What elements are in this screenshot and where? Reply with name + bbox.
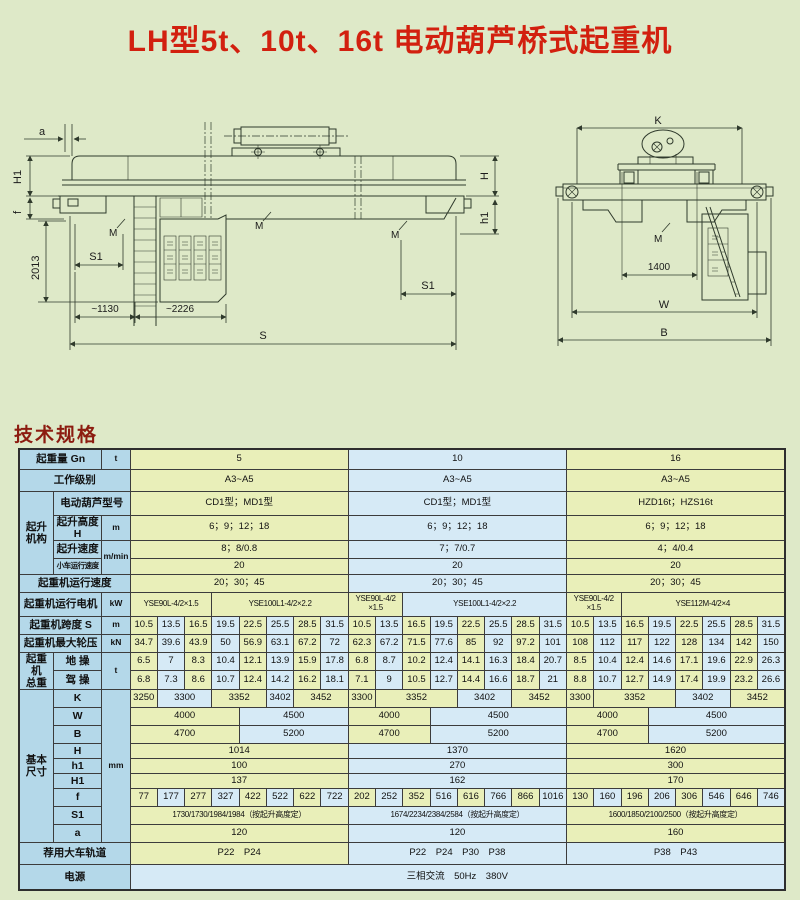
spec-cell: 130 <box>566 788 593 806</box>
spec-cell: 10.2 <box>403 652 430 671</box>
spec-cell: 3352 <box>212 689 267 707</box>
dim-label-S1-right: S1 <box>421 280 434 292</box>
spec-cell: 56.9 <box>239 634 266 652</box>
spec-cell: 23.2 <box>730 671 757 690</box>
spec-cell: 20.7 <box>539 652 566 671</box>
spec-cell: 67.2 <box>376 634 403 652</box>
spec-cell: P38 P43 <box>566 842 785 864</box>
spec-cell: YSE100L1-4/2×2.2 <box>403 592 567 616</box>
spec-cell: 77.6 <box>430 634 457 652</box>
row-label: K <box>53 689 101 707</box>
spec-cell: A3~A5 <box>130 469 348 491</box>
spec-cell: 170 <box>566 773 785 788</box>
spec-cell: 15.9 <box>294 652 321 671</box>
spec-cell: 522 <box>266 788 293 806</box>
spec-cell: 12.4 <box>239 671 266 690</box>
row-label: W <box>53 707 101 725</box>
end-view-dimensions <box>558 128 771 346</box>
spec-cell: 16.5 <box>403 616 430 634</box>
spec-cell: 122 <box>648 634 675 652</box>
spec-cell: 10.5 <box>403 671 430 690</box>
spec-cell: 39.6 <box>157 634 184 652</box>
spec-cell: 252 <box>376 788 403 806</box>
unit-label: t <box>102 449 130 469</box>
spec-cell: 150 <box>757 634 785 652</box>
spec-cell: 10.4 <box>212 652 239 671</box>
spec-cell: 300 <box>566 758 785 773</box>
spec-cell: 14.2 <box>266 671 293 690</box>
spec-cell: 19.5 <box>648 616 675 634</box>
spec-cell: 8.6 <box>185 671 212 690</box>
spec-cell: 4000 <box>566 707 648 725</box>
spec-cell: 108 <box>566 634 593 652</box>
unit-label: kN <box>102 634 130 652</box>
spec-cell: 112 <box>594 634 621 652</box>
spec-cell: 160 <box>594 788 621 806</box>
spec-cell: 28.5 <box>730 616 757 634</box>
dim-label-1400: 1400 <box>648 262 671 273</box>
unit-label: m <box>102 616 130 634</box>
spec-cell: 206 <box>648 788 675 806</box>
spec-cell: 31.5 <box>757 616 785 634</box>
spec-cell: 28.5 <box>294 616 321 634</box>
spec-cell: YSE90L-4/2 ×1.5 <box>566 592 621 616</box>
spec-cell: 13.5 <box>157 616 184 634</box>
spec-cell: 8.5 <box>566 652 593 671</box>
group-label: 起升 机构 <box>19 491 53 574</box>
unit-label: kW <box>102 592 130 616</box>
spec-cell: 142 <box>730 634 757 652</box>
spec-cell: 17.1 <box>676 652 703 671</box>
spec-cell: 25.5 <box>266 616 293 634</box>
spec-cell: 28.5 <box>512 616 539 634</box>
dim-label-h1: h1 <box>479 212 491 224</box>
spec-cell: 13.9 <box>266 652 293 671</box>
spec-cell: 10.5 <box>130 616 157 634</box>
spec-cell: 22.9 <box>730 652 757 671</box>
unit-label: m/min <box>102 540 130 574</box>
spec-cell: 4700 <box>348 725 430 743</box>
spec-cell: P22 P24 P30 P38 <box>348 842 566 864</box>
spec-cell: 50 <box>212 634 239 652</box>
row-label: 工作级别 <box>19 469 130 491</box>
spec-cell: A3~A5 <box>566 469 785 491</box>
spec-cell: 1674/2234/2384/2584（按起升高度定） <box>348 806 566 824</box>
spec-cell: 14.1 <box>457 652 484 671</box>
spec-cell: 8.7 <box>376 652 403 671</box>
spec-cell: 8.8 <box>566 671 593 690</box>
spec-cell: 26.3 <box>757 652 785 671</box>
spec-cell: 20；30；45 <box>130 574 348 592</box>
spec-cell: CD1型；MD1型 <box>130 491 348 515</box>
crane-front-view-drawing: a H1 f 2013 S1 ~1130 ~2226 S S1 H h1 M M… <box>8 112 553 417</box>
spec-cell: 20；30；45 <box>566 574 785 592</box>
row-label: 起重机跨度 S <box>19 616 102 634</box>
spec-cell: 8；8/0.8 <box>130 540 348 558</box>
spec-cell: 1620 <box>566 743 785 758</box>
spec-cell: 12.7 <box>621 671 648 690</box>
spec-cell: 196 <box>621 788 648 806</box>
spec-cell: 97.2 <box>512 634 539 652</box>
spec-cell: 5200 <box>648 725 785 743</box>
row-label: f <box>53 788 101 806</box>
spec-cell: 7 <box>157 652 184 671</box>
dim-label-K: K <box>654 115 662 127</box>
dim-label-1130: ~1130 <box>91 304 119 315</box>
end-view-structure <box>556 130 773 300</box>
dim-label-a: a <box>39 126 46 138</box>
spec-cell: 19.6 <box>703 652 730 671</box>
unit-label: mm <box>102 689 130 842</box>
spec-cell: 177 <box>157 788 184 806</box>
spec-cell: 270 <box>348 758 566 773</box>
spec-cell: 20 <box>130 558 348 574</box>
spec-cell: 71.5 <box>403 634 430 652</box>
spec-cell: 16.5 <box>621 616 648 634</box>
spec-cell: 352 <box>403 788 430 806</box>
front-view-dim-labels: a H1 f 2013 S1 ~1130 ~2226 S S1 H h1 M M… <box>12 126 491 342</box>
spec-cell: 6；9；12；18 <box>348 515 566 540</box>
spec-cell: 18.7 <box>512 671 539 690</box>
spec-cell: 866 <box>512 788 539 806</box>
spec-table: 起重量 Gnt51016工作级别A3~A5A3~A5A3~A5起升 机构电动葫芦… <box>18 448 786 891</box>
spec-cell: 16.2 <box>294 671 321 690</box>
row-label: H <box>53 743 101 758</box>
spec-cell: 3402 <box>676 689 731 707</box>
dim-label-2013: 2013 <box>30 256 42 280</box>
spec-cell: 1016 <box>539 788 566 806</box>
row-label: a <box>53 824 101 842</box>
spec-cell: 5200 <box>430 725 566 743</box>
spec-cell: 1730/1730/1984/1984（按起升高度定） <box>130 806 348 824</box>
row-label: 起重机运行速度 <box>19 574 130 592</box>
spec-cell: 101 <box>539 634 566 652</box>
spec-cell: 22.5 <box>676 616 703 634</box>
spec-cell: 516 <box>430 788 457 806</box>
spec-cell: 4000 <box>348 707 430 725</box>
spec-cell: 85 <box>457 634 484 652</box>
spec-cell: 327 <box>212 788 239 806</box>
section-centerlines <box>205 122 361 219</box>
hoist-trolley <box>232 127 340 159</box>
spec-cell: 三相交流 50Hz 380V <box>130 864 785 890</box>
dim-label-H: H <box>479 172 491 180</box>
spec-cell: 8.3 <box>185 652 212 671</box>
spec-cell: 10.5 <box>566 616 593 634</box>
spec-cell: 766 <box>485 788 512 806</box>
crane-end-view-drawing: K 1400 W B M <box>550 112 790 417</box>
spec-cell: YSE90L-4/2×1.5 <box>130 592 212 616</box>
row-label: 起重量 Gn <box>19 449 102 469</box>
group-label: 起重 机 总重 <box>19 652 53 689</box>
spec-cell: 14.6 <box>648 652 675 671</box>
dim-label-2226: ~2226 <box>166 304 195 315</box>
row-label: 小车运行速度 <box>53 558 101 574</box>
row-label: 地 操 <box>53 652 101 671</box>
unit-label: m <box>102 515 130 540</box>
spec-cell: 6.5 <box>130 652 157 671</box>
row-label: 起重机运行电机 <box>19 592 102 616</box>
spec-cell: 10.7 <box>594 671 621 690</box>
section-heading: 技术规格 <box>14 420 98 447</box>
row-label: B <box>53 725 101 743</box>
spec-cell: 17.4 <box>676 671 703 690</box>
spec-cell: 3300 <box>157 689 212 707</box>
row-label: 驾 操 <box>53 671 101 690</box>
spec-cell: 162 <box>348 773 566 788</box>
spec-cell: 1370 <box>348 743 566 758</box>
spec-cell: 306 <box>676 788 703 806</box>
dim-label-S1-left: S1 <box>89 251 102 263</box>
spec-cell: YSE100L1-4/2×2.2 <box>212 592 348 616</box>
row-label: S1 <box>53 806 101 824</box>
spec-cell: 616 <box>457 788 484 806</box>
dim-label-f: f <box>12 210 24 214</box>
section-mark-M: M <box>654 234 662 245</box>
spec-cell: 4500 <box>430 707 566 725</box>
row-label: H1 <box>53 773 101 788</box>
spec-cell: 20 <box>348 558 566 574</box>
spec-cell: 16.6 <box>485 671 512 690</box>
spec-cell: 3452 <box>294 689 349 707</box>
spec-cell: 134 <box>703 634 730 652</box>
spec-cell: 3452 <box>512 689 567 707</box>
spec-cell: 128 <box>676 634 703 652</box>
page-title: LH型5t、10t、16t 电动葫芦桥式起重机 <box>0 16 800 60</box>
spec-cell: 19.5 <box>430 616 457 634</box>
spec-cell: 67.2 <box>294 634 321 652</box>
spec-cell: 1600/1850/2100/2500（按起升高度定） <box>566 806 785 824</box>
spec-cell: 22.5 <box>457 616 484 634</box>
spec-cell: 21 <box>539 671 566 690</box>
spec-cell: YSE112M-4/2×4 <box>621 592 785 616</box>
dim-label-W: W <box>659 299 670 311</box>
spec-cell: 31.5 <box>321 616 348 634</box>
spec-cell: 646 <box>730 788 757 806</box>
spec-cell: 6.8 <box>130 671 157 690</box>
spec-cell: 63.1 <box>266 634 293 652</box>
spec-cell: 6；9；12；18 <box>130 515 348 540</box>
spec-cell: 12.4 <box>430 652 457 671</box>
spec-cell: 77 <box>130 788 157 806</box>
spec-cell: 277 <box>185 788 212 806</box>
spec-cell: 31.5 <box>539 616 566 634</box>
row-label: 电动葫芦型号 <box>53 491 130 515</box>
spec-cell: A3~A5 <box>348 469 566 491</box>
spec-cell: 26.6 <box>757 671 785 690</box>
spec-cell: 19.9 <box>703 671 730 690</box>
spec-cell: 16 <box>566 449 785 469</box>
spec-cell: 5200 <box>239 725 348 743</box>
spec-cell: 120 <box>348 824 566 842</box>
spec-cell: 13.5 <box>594 616 621 634</box>
spec-cell: 120 <box>130 824 348 842</box>
spec-cell: 7.3 <box>157 671 184 690</box>
spec-cell: 117 <box>621 634 648 652</box>
spec-cell: 137 <box>130 773 348 788</box>
spec-cell: 622 <box>294 788 321 806</box>
section-mark-M: M <box>255 221 263 232</box>
spec-cell: 9 <box>376 671 403 690</box>
spec-cell: 6.8 <box>348 652 375 671</box>
front-view-dimensions <box>24 124 499 350</box>
spec-cell: 18.1 <box>321 671 348 690</box>
spec-cell: 25.5 <box>485 616 512 634</box>
spec-cell: 10.5 <box>348 616 375 634</box>
spec-cell: 746 <box>757 788 785 806</box>
spec-cell: HZD16t；HZS16t <box>566 491 785 515</box>
spec-cell: 16.5 <box>185 616 212 634</box>
spec-cell: 10 <box>348 449 566 469</box>
spec-cell: 13.5 <box>376 616 403 634</box>
spec-cell: 3352 <box>594 689 676 707</box>
spec-cell: CD1型；MD1型 <box>348 491 566 515</box>
spec-cell: 722 <box>321 788 348 806</box>
unit-label: t <box>102 652 130 689</box>
spec-cell: 100 <box>130 758 348 773</box>
spec-cell: 12.4 <box>621 652 648 671</box>
spec-cell: 4500 <box>239 707 348 725</box>
spec-cell: 10.4 <box>594 652 621 671</box>
spec-cell: 19.5 <box>212 616 239 634</box>
spec-cell: 17.8 <box>321 652 348 671</box>
spec-cell: P22 P24 <box>130 842 348 864</box>
spec-cell: 546 <box>703 788 730 806</box>
spec-cell: 4000 <box>130 707 239 725</box>
spec-cell: 4500 <box>648 707 785 725</box>
spec-cell: 92 <box>485 634 512 652</box>
spec-cell: 14.4 <box>457 671 484 690</box>
row-label: h1 <box>53 758 101 773</box>
spec-cell: 62.3 <box>348 634 375 652</box>
spec-cell: 6；9；12；18 <box>566 515 785 540</box>
spec-cell: 1014 <box>130 743 348 758</box>
dim-label-B: B <box>660 327 667 339</box>
spec-cell: 422 <box>239 788 266 806</box>
row-label: 起升高度H <box>53 515 101 540</box>
spec-cell: 3402 <box>266 689 293 707</box>
section-mark-M: M <box>109 228 117 239</box>
row-label: 荐用大车轨道 <box>19 842 130 864</box>
spec-cell: 18.4 <box>512 652 539 671</box>
spec-cell: 16.3 <box>485 652 512 671</box>
spec-cell: 3250 <box>130 689 157 707</box>
spec-cell: 4；4/0.4 <box>566 540 785 558</box>
spec-cell: 34.7 <box>130 634 157 652</box>
spec-cell: 10.7 <box>212 671 239 690</box>
spec-cell: 3300 <box>566 689 593 707</box>
dim-label-S: S <box>259 330 266 342</box>
dim-label-H1: H1 <box>12 170 24 184</box>
spec-cell: 7.1 <box>348 671 375 690</box>
spec-cell: 3452 <box>730 689 785 707</box>
spec-cell: 14.9 <box>648 671 675 690</box>
spec-cell: 43.9 <box>185 634 212 652</box>
group-label: 基本 尺寸 <box>19 689 53 842</box>
spec-cell: 12.1 <box>239 652 266 671</box>
spec-cell: 3352 <box>376 689 458 707</box>
spec-cell: 20；30；45 <box>348 574 566 592</box>
spec-cell: 4700 <box>130 725 239 743</box>
row-label: 起重机最大轮压 <box>19 634 102 652</box>
spec-cell: 12.7 <box>430 671 457 690</box>
spec-cell: 7；7/0.7 <box>348 540 566 558</box>
row-label: 电源 <box>19 864 130 890</box>
spec-cell: 4700 <box>566 725 648 743</box>
spec-cell: 22.5 <box>239 616 266 634</box>
spec-cell: 3402 <box>457 689 512 707</box>
spec-cell: 72 <box>321 634 348 652</box>
section-mark-M: M <box>391 230 399 241</box>
spec-cell: 20 <box>566 558 785 574</box>
bridge-girder-outline <box>53 156 471 213</box>
spec-cell: 25.5 <box>703 616 730 634</box>
spec-cell: YSE90L-4/2 ×1.5 <box>348 592 403 616</box>
spec-cell: 3300 <box>348 689 375 707</box>
spec-cell: 160 <box>566 824 785 842</box>
spec-cell: 202 <box>348 788 375 806</box>
row-label: 起升速度 <box>53 540 101 558</box>
spec-cell: 5 <box>130 449 348 469</box>
end-view-dim-labels: K 1400 W B M <box>648 115 671 339</box>
